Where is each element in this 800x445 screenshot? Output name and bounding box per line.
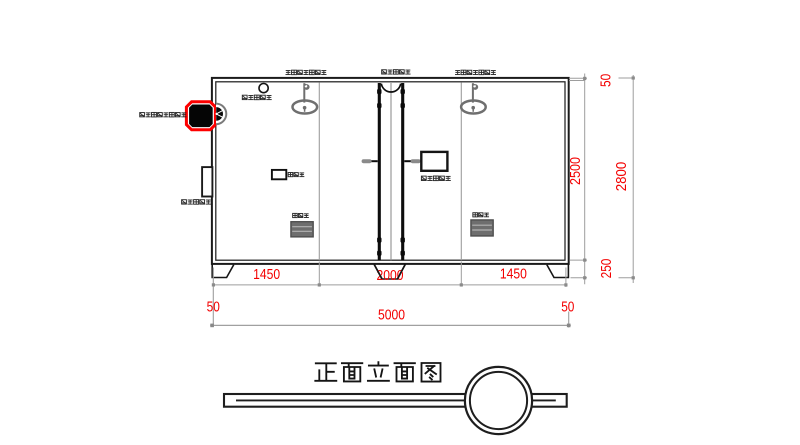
svg-text:50: 50 <box>599 74 615 87</box>
svg-text:2800: 2800 <box>614 162 630 192</box>
svg-text:2500: 2500 <box>568 157 584 185</box>
svg-text:250: 250 <box>599 259 615 279</box>
svg-text:1450: 1450 <box>253 267 280 283</box>
svg-text:5000: 5000 <box>378 308 405 324</box>
svg-text:1450: 1450 <box>500 267 527 283</box>
svg-text:50: 50 <box>207 300 220 316</box>
svg-text:50: 50 <box>561 300 574 316</box>
